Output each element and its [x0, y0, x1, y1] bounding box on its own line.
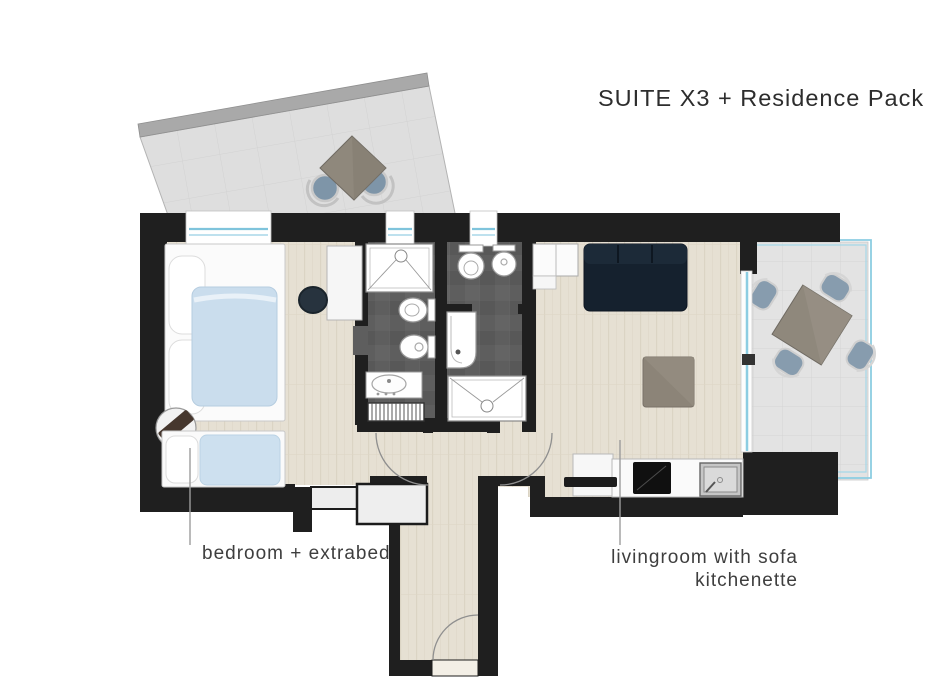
floor-plan-page: SUITE X3 + Residence Pack bedroom + extr…: [0, 0, 940, 693]
extra-bed-blanket: [200, 435, 280, 485]
shower-drain: [481, 400, 493, 412]
shower-cabinet: [447, 312, 476, 368]
kitchen-sink: [700, 463, 741, 496]
shower: [366, 244, 433, 292]
toilet: [458, 245, 484, 279]
living-label-line1: livingroom with sofa: [611, 547, 798, 568]
desk: [327, 246, 362, 320]
bathroom-door-gap-floor: [353, 326, 368, 355]
entry-door-leaf: [432, 660, 478, 676]
sofa: [584, 244, 687, 311]
coffee-table: [643, 357, 694, 407]
wardrobe-cabinet: [357, 484, 427, 524]
duvet: [192, 287, 277, 406]
toilet: [400, 335, 435, 359]
wardrobe-cabinet: [311, 487, 357, 509]
shower: [448, 376, 526, 421]
kitchenette: [564, 454, 743, 497]
sink-vanity: [366, 372, 422, 398]
bathroom2-window: [470, 211, 497, 246]
floor-plan-drawing: SUITE X3 + Residence Pack bedroom + extr…: [0, 0, 940, 693]
bidet: [399, 298, 435, 322]
bedroom-label: bedroom + extrabed: [202, 543, 391, 564]
pillow: [166, 436, 198, 483]
terrace-top-left: [138, 73, 456, 218]
kitchen-cabinet: [573, 454, 613, 496]
bedroom-window: [186, 211, 271, 246]
kitchen-shelf-bar: [564, 477, 617, 487]
bathroom1-window: [386, 211, 414, 246]
radiator: [368, 403, 424, 421]
cooktop: [633, 462, 671, 494]
bidet: [492, 245, 516, 276]
door-handle: [742, 354, 755, 365]
shower-head: [395, 250, 407, 262]
page-title: SUITE X3 + Residence Pack: [598, 85, 924, 111]
desk-chair: [299, 287, 327, 313]
living-label-line2: kitchenette: [695, 570, 798, 591]
